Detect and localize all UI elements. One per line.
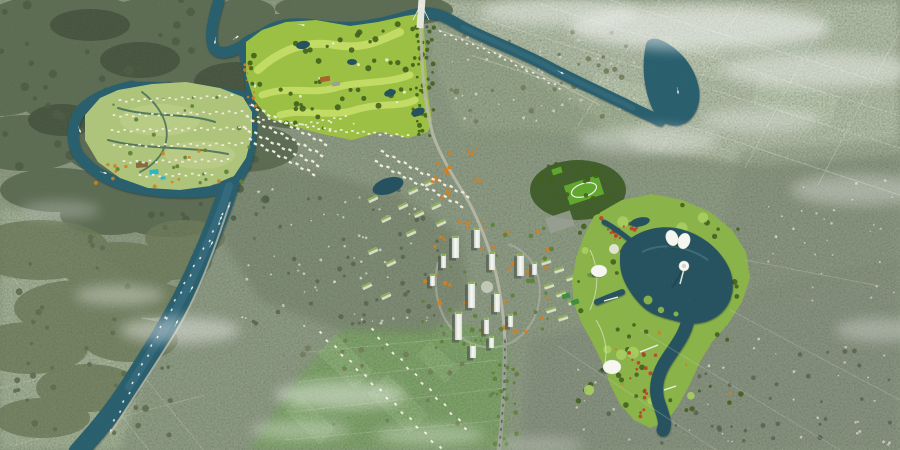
mist-cloud: [275, 381, 405, 409]
aerial-masterplan-screenshot: [0, 0, 900, 450]
mist-cloud: [700, 108, 820, 132]
mist-cloud: [75, 285, 165, 305]
mist-cloud: [20, 201, 100, 219]
mist-cloud: [250, 420, 350, 440]
aerial-render: [0, 0, 900, 450]
mist-cloud: [375, 425, 485, 445]
mist-cloud: [578, 126, 718, 154]
mist-cloud: [120, 317, 240, 343]
